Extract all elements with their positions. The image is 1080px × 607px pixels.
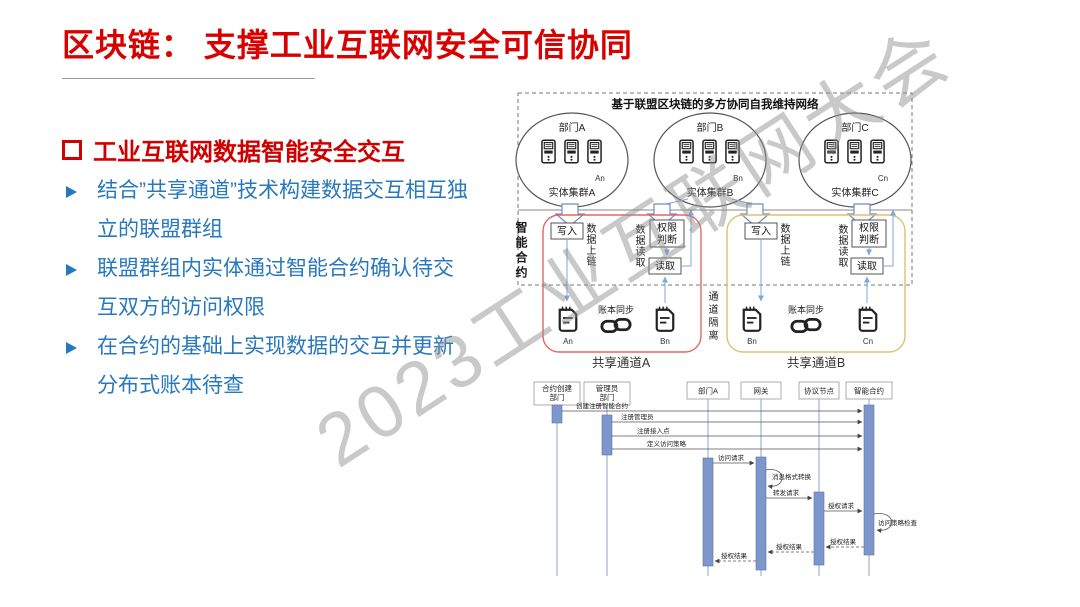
chain-link-icon [602,319,630,331]
department-b-cluster: 部门B Bn 实体集群B [654,113,766,207]
server-icon [588,140,601,163]
lifeline-label: 部门A [698,386,718,396]
lifeline-label: 部门 [600,392,615,402]
ledger-icon [744,307,761,331]
data-read-label: 数据读取 [633,224,643,268]
seq-message-label: 消息格式转换 [772,472,812,481]
data-upchain-label: 数据上链 [778,223,788,267]
lifeline-label: 管理员 [596,383,619,393]
lifeline-label: 部门 [550,392,565,402]
presentation-slide: 区块链： 支撑工业互联网安全可信协同 工业互联网数据智能安全交互 结合”共享通道… [0,0,1080,607]
ledger-label: Bn [747,337,757,346]
node-label: An [595,174,605,183]
seq-message-label: 注册管理员 [621,412,654,421]
write-box-label: 写入 [557,226,577,238]
cluster-label: 实体集群A [549,186,596,199]
server-icon [542,140,555,163]
ledger-label: An [563,337,573,346]
lifeline-label: 协议节点 [804,386,834,396]
server-icon [825,140,838,163]
seq-message-label: 授权请求 [828,501,855,510]
server-icon [726,140,739,163]
department-label: 部门A [559,121,586,134]
server-icon [680,140,693,163]
permission-box-label: 权限 [657,221,677,234]
cluster-label: 实体集群C [831,186,878,199]
seq-message-label: 访问请求 [718,453,745,462]
channel-isolation-label: 通道隔离 [706,291,716,343]
write-box-label: 写入 [751,226,771,238]
seq-message-label: 授权结果 [721,551,748,560]
network-title: 基于联盟区块链的多方协同自我维持网络 [611,97,819,111]
lifeline-label: 合约创建 [542,383,572,393]
server-icon [703,140,716,163]
smart-contract-vertical-label: 智能合约 [515,221,527,281]
department-label: 部门B [697,121,724,134]
ledger-sync-label: 账本同步 [788,304,824,315]
ledger-icon [560,307,577,331]
ledger-label: Bn [660,337,670,346]
cluster-label: 实体集群B [687,186,734,199]
read-box-label: 读取 [857,260,877,273]
lifeline-label: 智能合约 [854,386,884,396]
permission-box-label: 权限 [859,221,879,234]
seq-message-label: 访问策略检查 [878,518,918,527]
data-read-label: 数据读取 [836,224,846,268]
activation-bars [552,405,874,570]
node-label: Bn [733,174,743,183]
server-icon [848,140,861,163]
seq-message-label: 授权结果 [830,537,857,546]
permission-box-label: 判断 [859,233,879,246]
chain-link-icon [792,319,820,331]
department-c-cluster: 部门C Cn 实体集群C [799,113,911,207]
server-icon [565,140,578,163]
seq-message-label: 注册接入点 [637,426,670,435]
ledger-label: Cn [863,337,873,346]
node-label: Cn [878,174,888,183]
ledger-sync-label: 账本同步 [598,304,634,315]
department-a-cluster: 部门A An 实体集群A [516,113,628,207]
sequence-diagram: 合约创建 部门 管理员 部门 部门A 网关 协议节点 智能合约 [534,382,918,576]
data-upchain-label: 数据上链 [584,223,594,267]
ledger-icon [657,307,674,331]
lifeline-headers: 合约创建 部门 管理员 部门 部门A 网关 协议节点 智能合约 [534,382,892,405]
ledger-icon [860,307,877,331]
seq-message-label: 转发请求 [773,488,800,497]
lifeline-label: 网关 [754,386,769,396]
seq-message-label: 创建注册智能合约 [576,401,628,410]
shared-channel-b: 写入 权限 判断 读取 Bn Cn 账本同步 [727,210,905,352]
server-icon [871,140,884,163]
shared-channel-a: 写入 权限 判断 读取 An Bn 账本同步 [543,210,701,352]
seq-message-label: 授权结果 [776,542,803,551]
channel-a-label: 共享通道A [592,355,651,370]
seq-message-label: 定义访问策略 [647,439,687,448]
department-label: 部门C [841,121,868,134]
diagram-canvas: 基于联盟区块链的多方协同自我维持网络 部门A An 实体集群A 部门B Bn [0,0,1080,607]
read-box-label: 读取 [655,260,675,273]
permission-box-label: 判断 [657,233,677,246]
channel-b-label: 共享通道B [787,355,845,370]
